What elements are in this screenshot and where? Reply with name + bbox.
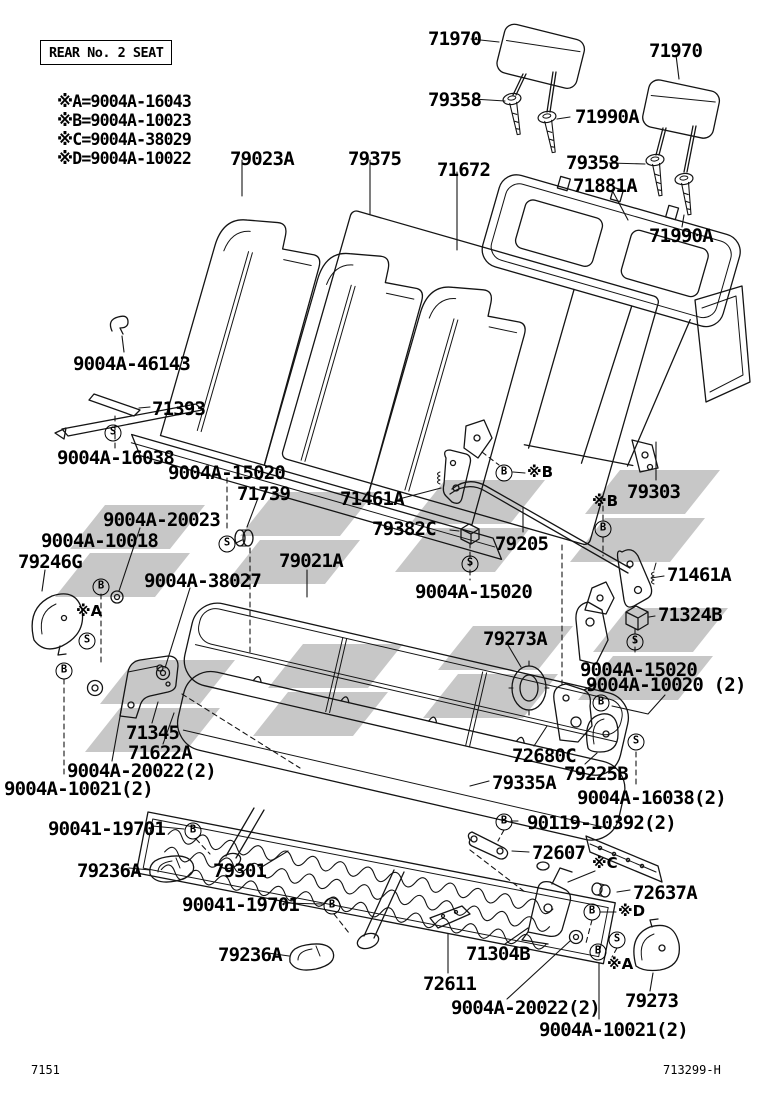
legend-line-d: ※D=9004A-10022 [57, 149, 191, 168]
part-label-90041-19701-b: 90041-19701 [182, 896, 299, 915]
cover-79273-art [634, 919, 679, 971]
part-label-90119-10392-2: 90119-10392(2) [527, 814, 676, 833]
part-label-71970-left: 71970 [428, 30, 481, 49]
bolt-symbol: B [595, 521, 612, 538]
cover-79246G-art [32, 594, 82, 655]
part-label-9004A-10021-2-b: 9004A-10021(2) [539, 1021, 688, 1040]
part-label-71990A-left: 71990A [575, 108, 639, 127]
part-label-79225B: 79225B [564, 765, 628, 784]
part-label-71345: 71345 [126, 724, 179, 743]
part-label-9004A-16038: 9004A-16038 [57, 449, 174, 468]
frame-bracket-art [464, 286, 750, 472]
ref-mark-D: ※D [618, 904, 645, 919]
part-label-9004A-38027: 9004A-38027 [144, 572, 261, 591]
part-label-71461A-left: 71461A [340, 490, 404, 509]
ref-mark-C: ※C [592, 856, 618, 871]
part-label-71324B: 71324B [658, 606, 722, 625]
part-label-79236A-a: 79236A [77, 862, 141, 881]
part-label-79358-left: 79358 [428, 91, 481, 110]
bolt-symbol: B [93, 579, 110, 596]
substitution-legend: ※A=9004A-16043 ※B=9004A-10023 ※C=9004A-3… [57, 92, 191, 168]
bolt-symbol: B [584, 904, 601, 921]
part-label-79375: 79375 [348, 150, 401, 169]
part-label-79382C: 79382C [372, 520, 436, 539]
part-label-71881A: 71881A [573, 177, 637, 196]
bolt-symbol: B [590, 944, 607, 961]
part-label-79246G: 79246G [18, 553, 82, 572]
ref-mark-B: ※B [592, 494, 618, 509]
legend-line-c: ※C=9004A-38029 [57, 130, 191, 149]
ref-mark-A: ※A [76, 604, 102, 619]
part-label-72611: 72611 [423, 975, 476, 994]
bolt-symbol: B [593, 695, 610, 712]
part-label-9004A-15020-a: 9004A-15020 [168, 464, 285, 483]
part-label-71739: 71739 [237, 485, 290, 504]
bolt-symbol: B [185, 823, 202, 840]
seat-frame-art [136, 812, 615, 964]
ref-mark-A: ※A [607, 957, 633, 972]
part-label-79303: 79303 [627, 483, 680, 502]
part-label-79301: 79301 [213, 862, 266, 881]
screw-symbol: S [628, 734, 645, 751]
part-label-9004A-20023: 9004A-20023 [103, 511, 220, 530]
part-label-71393: 71393 [152, 400, 205, 419]
part-label-79023A: 79023A [230, 150, 294, 169]
bolt-symbol: B [496, 465, 513, 482]
legend-line-a: ※A=9004A-16043 [57, 92, 191, 111]
part-label-9004A-20022-2-b: 9004A-20022(2) [451, 999, 600, 1018]
screw-symbol: S [219, 536, 236, 553]
bolt-symbol: B [496, 814, 513, 831]
figure-code: 713299-H [663, 1063, 721, 1077]
part-label-72607: 72607 [532, 844, 585, 863]
part-label-71461A-right: 71461A [667, 566, 731, 585]
screw-symbol: S [609, 932, 626, 949]
screw-symbol: S [79, 633, 96, 650]
part-label-72637A: 72637A [633, 884, 697, 903]
screw-symbol: S [627, 634, 644, 651]
bolt-symbol: B [324, 898, 341, 915]
part-label-79236A-b: 79236A [218, 946, 282, 965]
diagram-title-box: REAR No. 2 SEAT [40, 40, 172, 65]
ref-mark-B: ※B [527, 465, 553, 480]
part-label-9004A-16038-2: 9004A-16038(2) [577, 789, 726, 808]
screw-symbol: S [462, 556, 479, 573]
part-label-79273A: 79273A [483, 630, 547, 649]
part-label-9004A-10021-2-a: 9004A-10021(2) [4, 780, 153, 799]
screw-symbol: S [105, 425, 122, 442]
parts-diagram-page: { "header": { "box_label": "REAR No. 2 S… [0, 0, 760, 1112]
part-label-90041-19701-a: 90041-19701 [48, 820, 165, 839]
part-label-9004A-15020-b: 9004A-15020 [415, 583, 532, 602]
part-label-71304B: 71304B [466, 945, 530, 964]
part-label-71672: 71672 [437, 161, 490, 180]
part-label-79205: 79205 [495, 535, 548, 554]
part-label-79273: 79273 [625, 992, 678, 1011]
part-label-79021A: 79021A [279, 552, 343, 571]
headrest-left-art [495, 22, 587, 112]
legend-line-b: ※B=9004A-10023 [57, 111, 191, 130]
bolt-symbol: B [56, 663, 73, 680]
part-label-9004A-10018: 9004A-10018 [41, 532, 158, 551]
part-label-79335A: 79335A [492, 774, 556, 793]
part-label-9004A-10020-2: 9004A-10020 (2) [586, 676, 746, 695]
part-label-9004A-46143: 9004A-46143 [73, 355, 190, 374]
part-label-71990A-right: 71990A [649, 227, 713, 246]
page-code: 7151 [31, 1063, 60, 1077]
part-label-71970-right: 71970 [649, 42, 702, 61]
part-label-79358-right: 79358 [566, 154, 619, 173]
link-72607-art [468, 832, 507, 859]
headrest-right-art [641, 78, 721, 172]
hook-art [110, 316, 128, 334]
